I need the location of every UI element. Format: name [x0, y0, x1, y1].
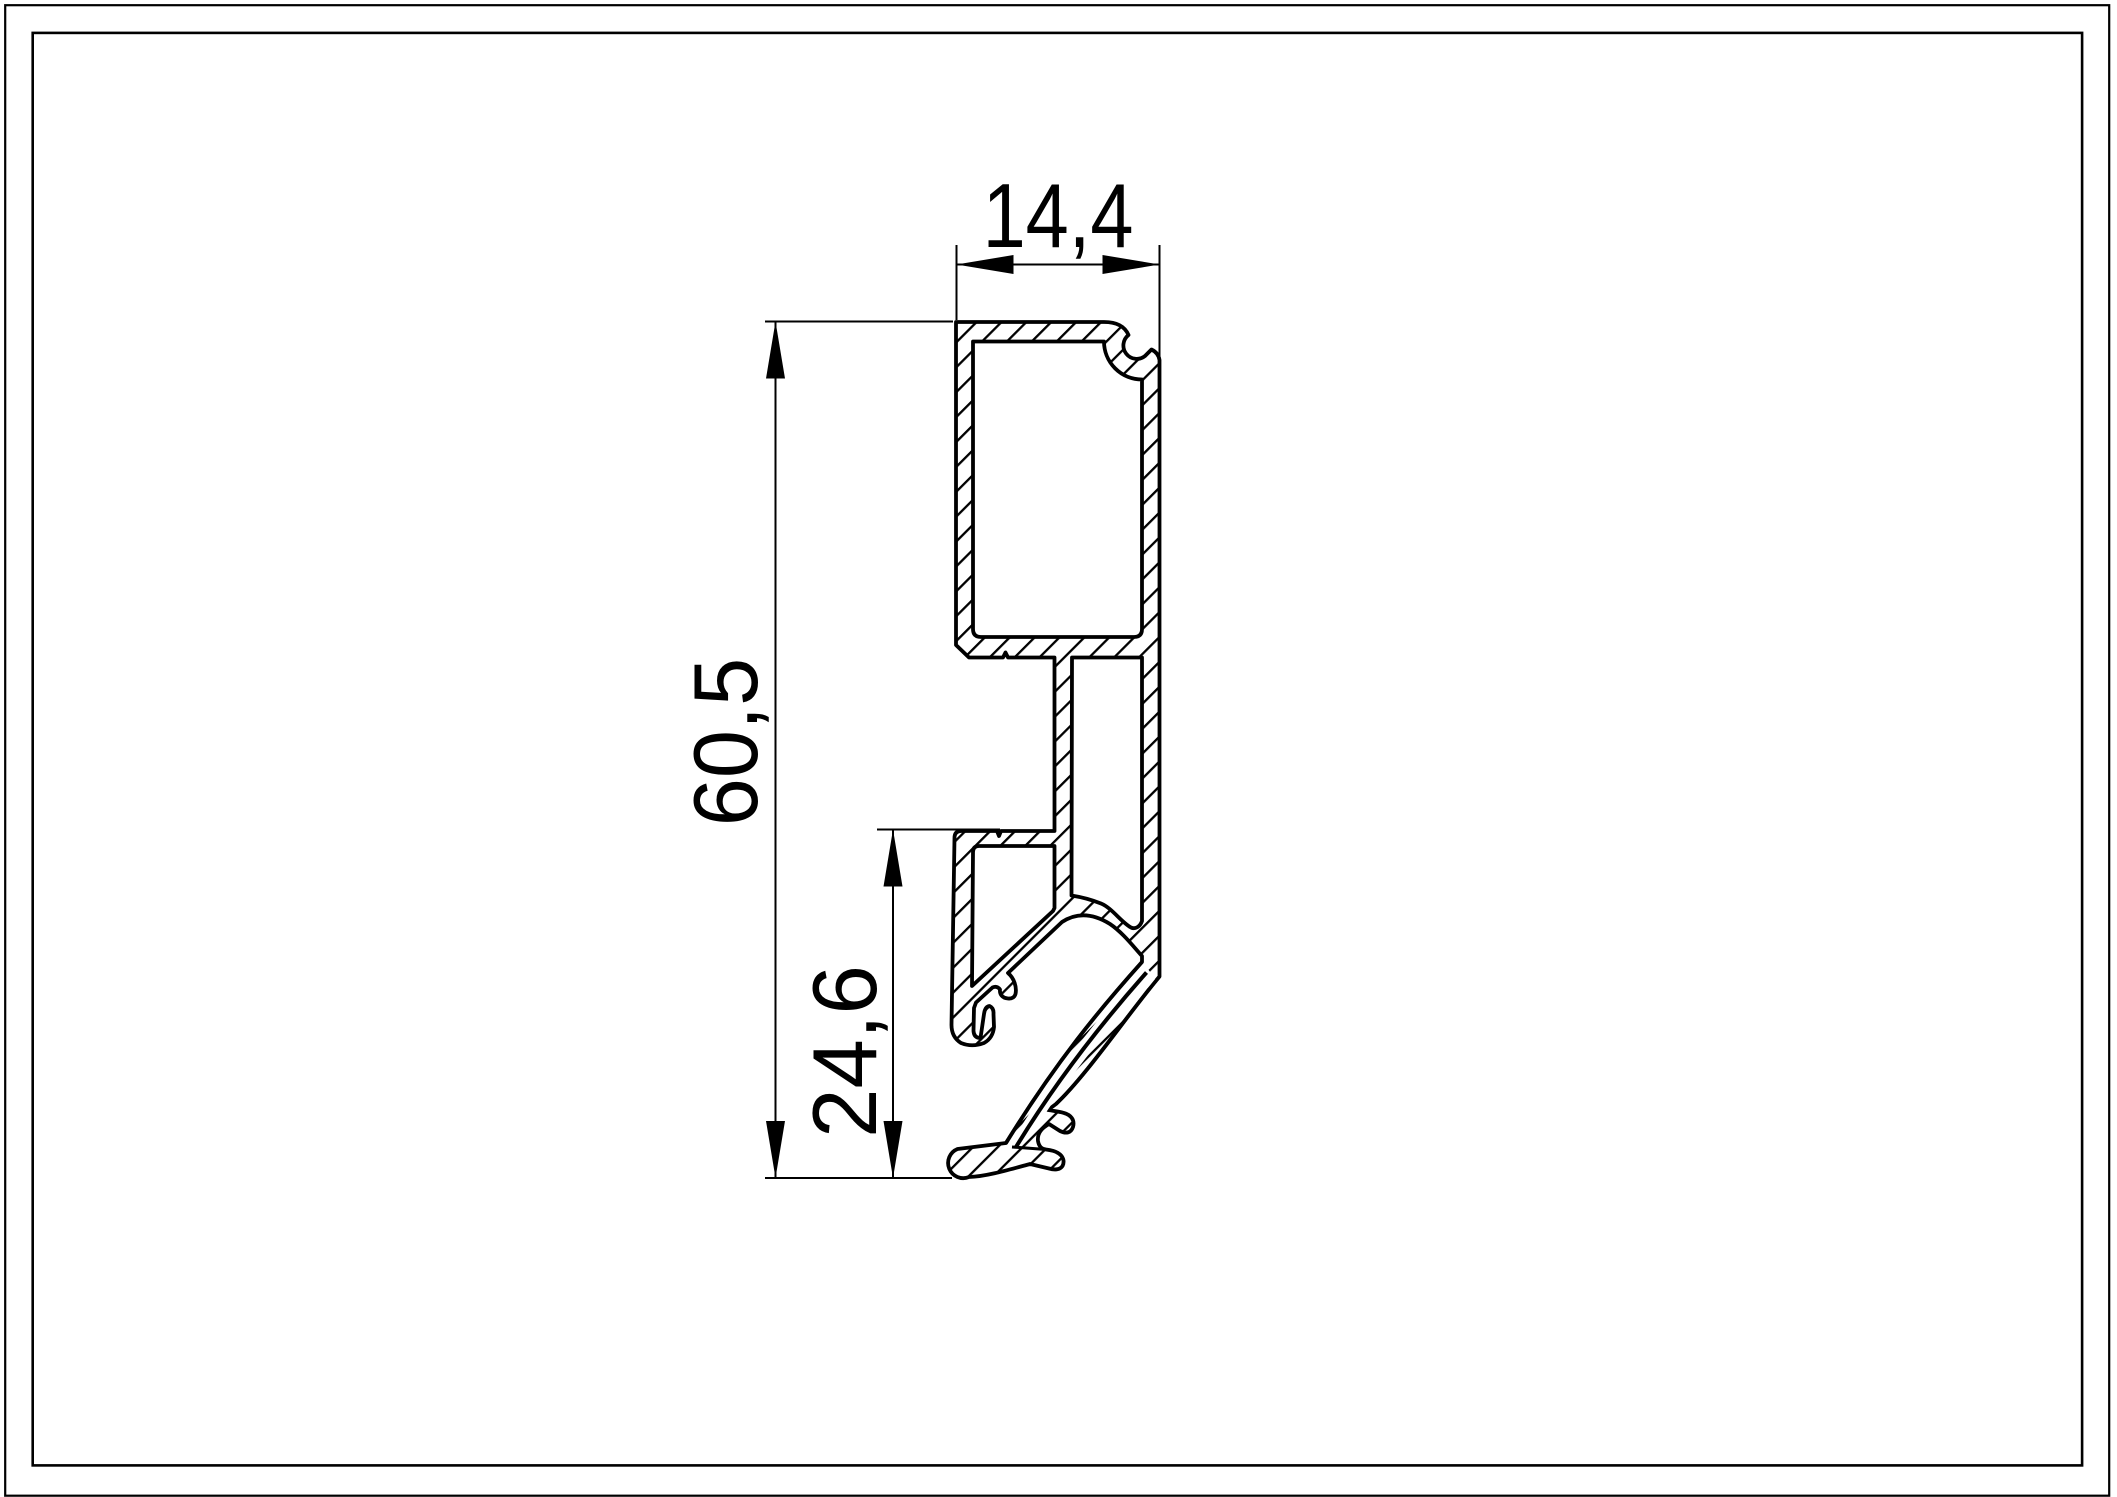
svg-text:14,4: 14,4 [983, 164, 1134, 266]
svg-text:60,5: 60,5 [675, 658, 776, 827]
svg-text:24,6: 24,6 [795, 965, 896, 1138]
